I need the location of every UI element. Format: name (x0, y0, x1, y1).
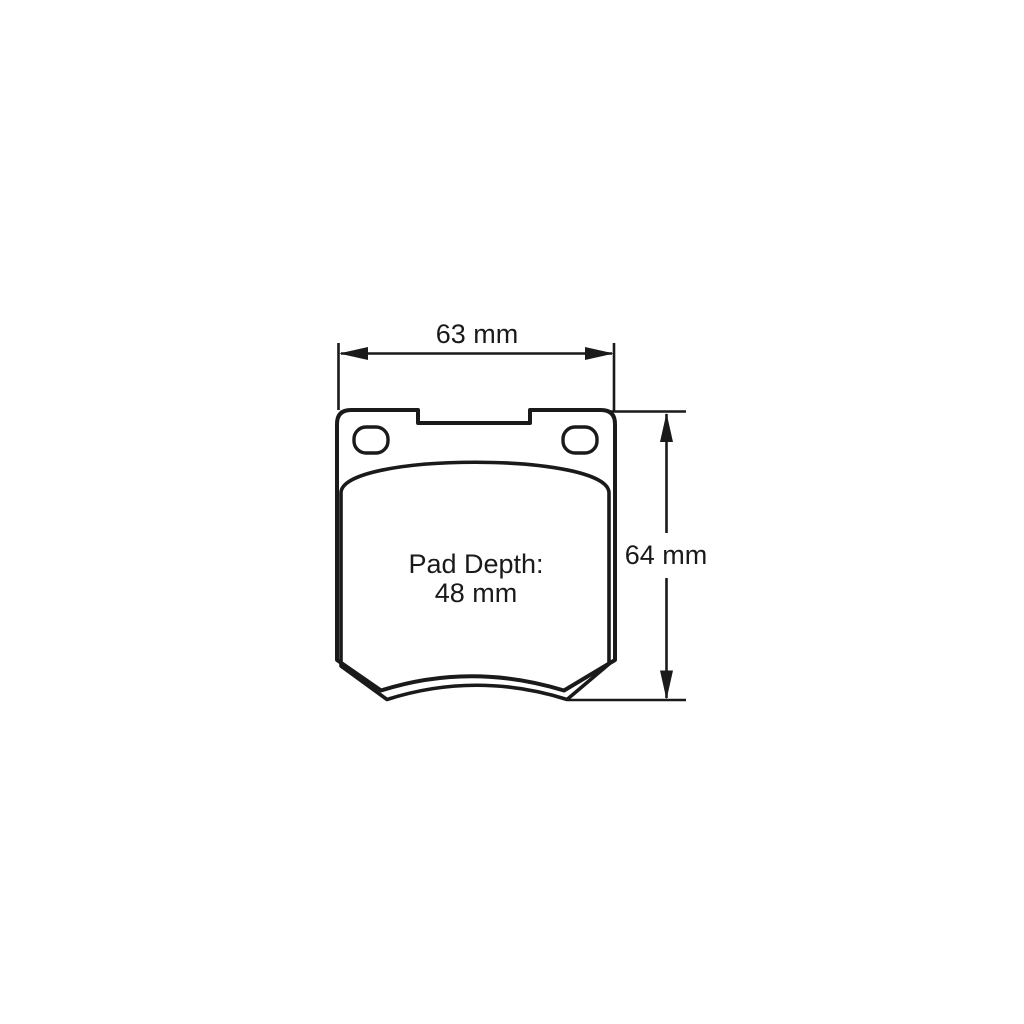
height-dimension-label: 64 mm (625, 541, 708, 569)
width-arrowhead-left-icon (339, 347, 368, 360)
width-arrowhead-right-icon (585, 347, 614, 360)
width-dimension (339, 343, 615, 412)
pad-depth-label: Pad Depth: 48 mm (408, 550, 543, 608)
width-dimension-label: 63 mm (436, 320, 519, 348)
pad-depth-value: 48 mm (408, 579, 543, 608)
height-arrowhead-top-icon (660, 413, 673, 442)
brake-pad-drawing (0, 0, 1024, 1024)
mounting-hole-right (563, 427, 597, 453)
height-arrowhead-bottom-icon (660, 671, 673, 700)
diagram-canvas: 63 mm 64 mm Pad Depth: 48 mm (0, 0, 1024, 1024)
pad-depth-caption: Pad Depth: (408, 550, 543, 579)
mounting-hole-left (354, 427, 388, 453)
